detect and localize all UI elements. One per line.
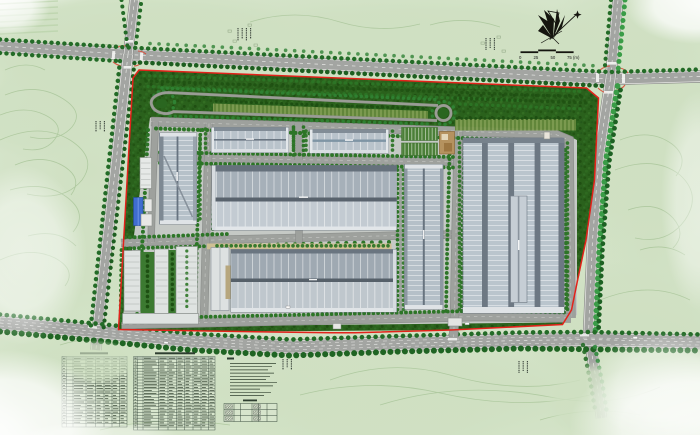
svg-text:25: 25 — [534, 55, 539, 60]
svg-text:50: 50 — [551, 55, 556, 60]
svg-text:75 (m): 75 (m) — [567, 55, 580, 60]
